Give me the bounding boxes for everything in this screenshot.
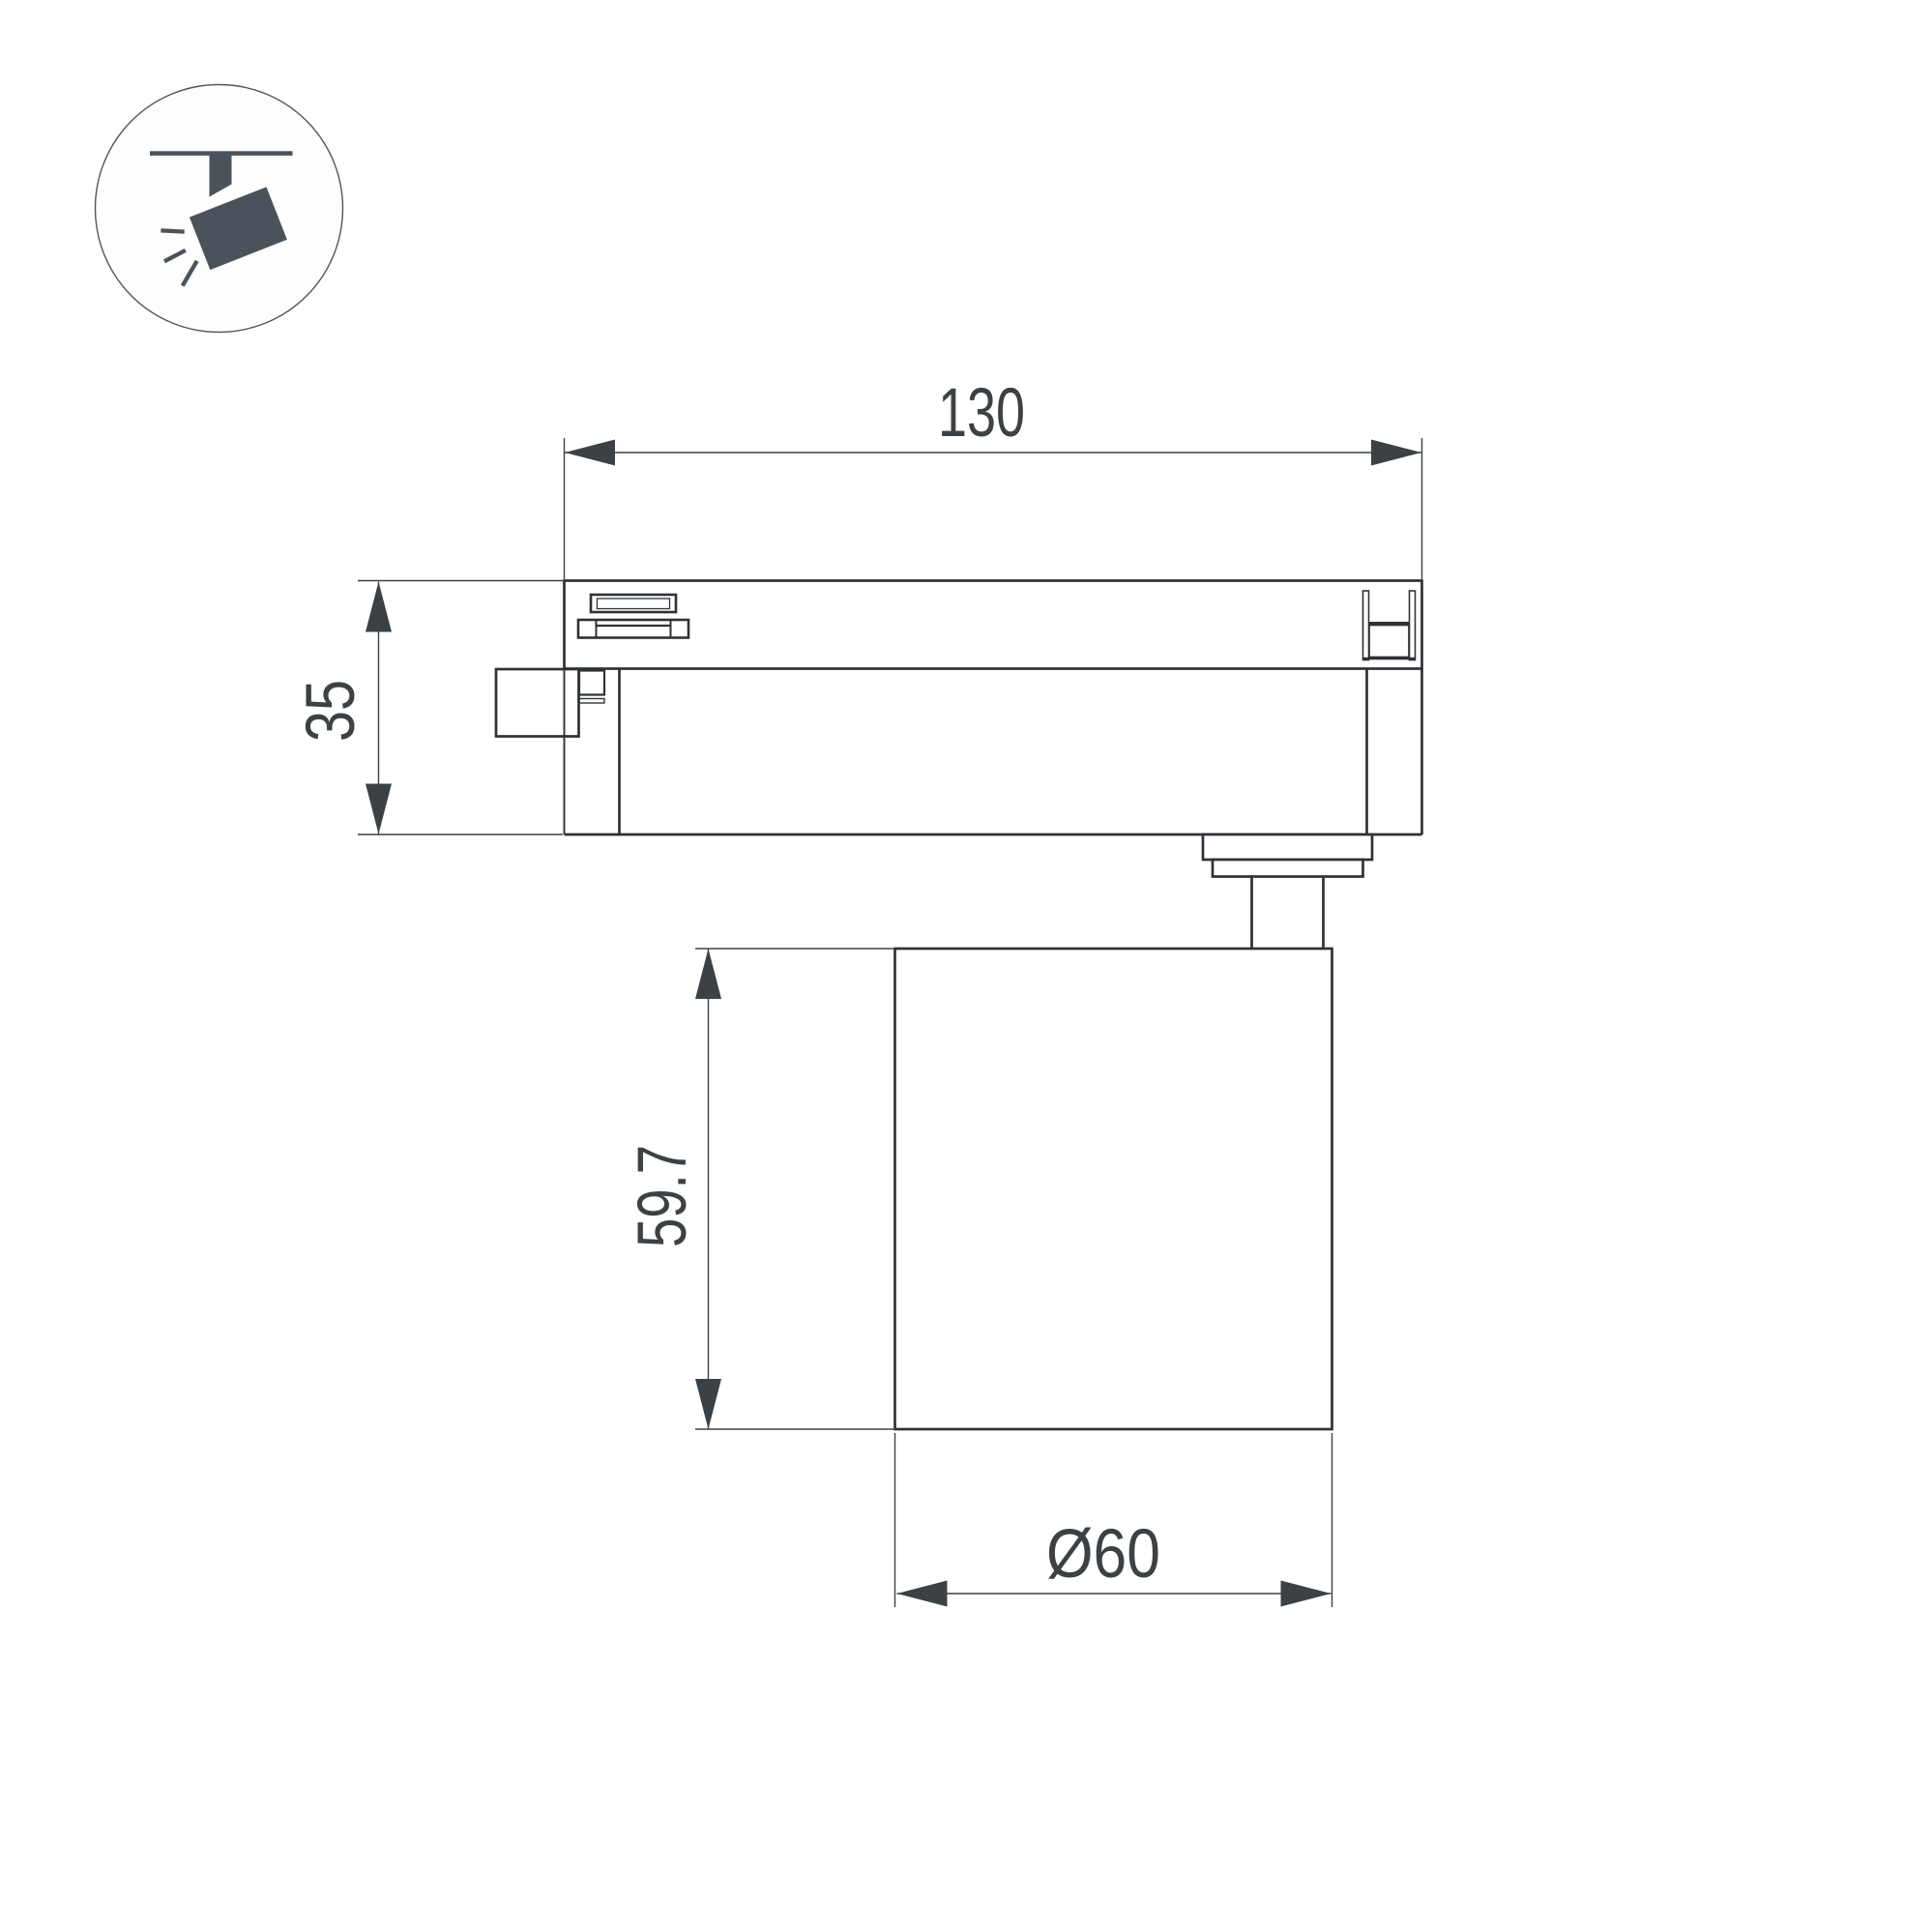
svg-text:59.7: 59.7 xyxy=(625,1145,701,1247)
svg-text:35: 35 xyxy=(293,680,369,742)
svg-text:130: 130 xyxy=(938,375,1025,452)
svg-text:Ø60: Ø60 xyxy=(1046,1516,1160,1593)
